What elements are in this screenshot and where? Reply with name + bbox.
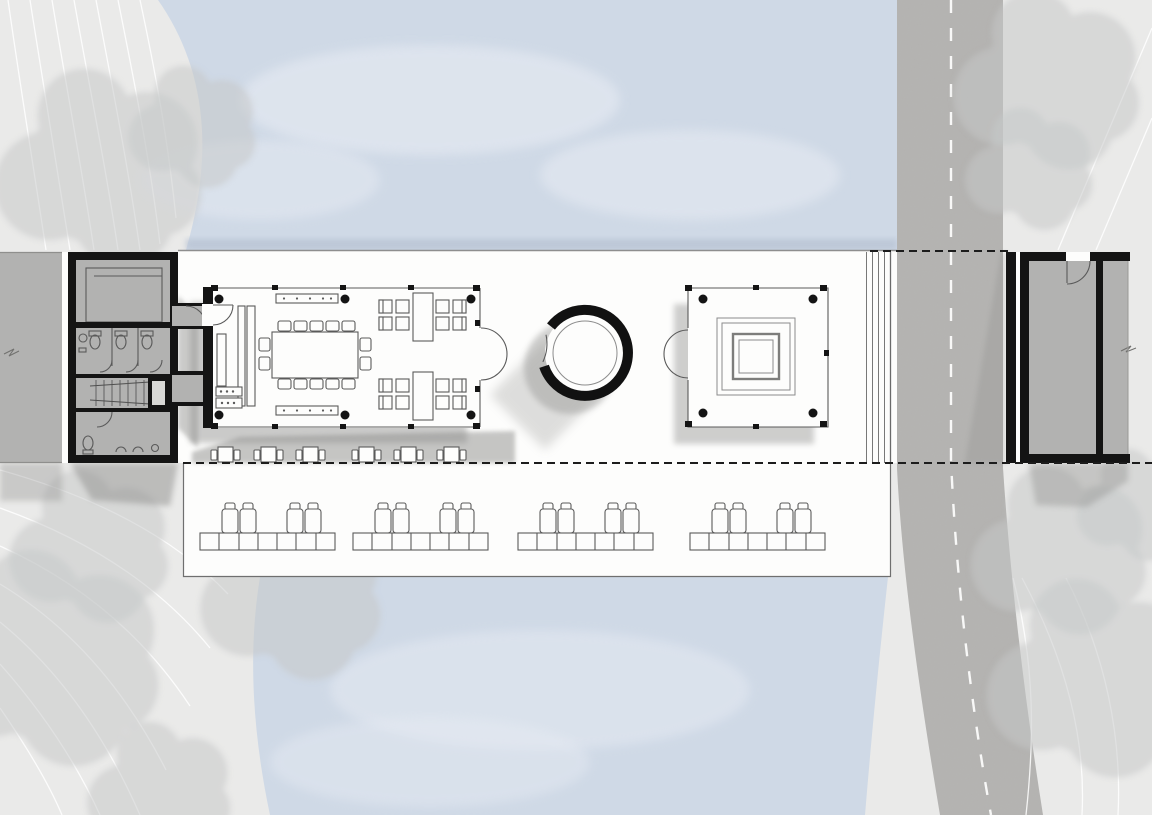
terrace-bench — [518, 533, 653, 550]
right-building-inner-wall — [1096, 261, 1103, 454]
circular-pavilion — [543, 310, 628, 396]
right-building — [1006, 252, 1136, 463]
lounge-table — [413, 372, 433, 420]
left-building-continuation-slab — [0, 252, 62, 463]
site-plan-canvas — [0, 0, 1152, 815]
terrace-bench — [353, 533, 488, 550]
left-service-building — [0, 252, 206, 463]
lounge-table — [413, 293, 433, 341]
right-building-outer-wall — [1006, 252, 1016, 463]
site-plan-drawing — [0, 0, 1152, 815]
conference-table — [272, 332, 358, 378]
water-highlight — [240, 45, 620, 155]
terrace-bench — [690, 533, 825, 550]
square-pavilion — [664, 285, 829, 429]
main-hall — [202, 285, 507, 429]
right-building-door-gap — [1066, 252, 1090, 261]
terrace-bench — [200, 533, 335, 550]
corridor-link — [172, 371, 204, 406]
water-shore-band — [186, 239, 897, 250]
upper-landing-link — [172, 303, 206, 329]
